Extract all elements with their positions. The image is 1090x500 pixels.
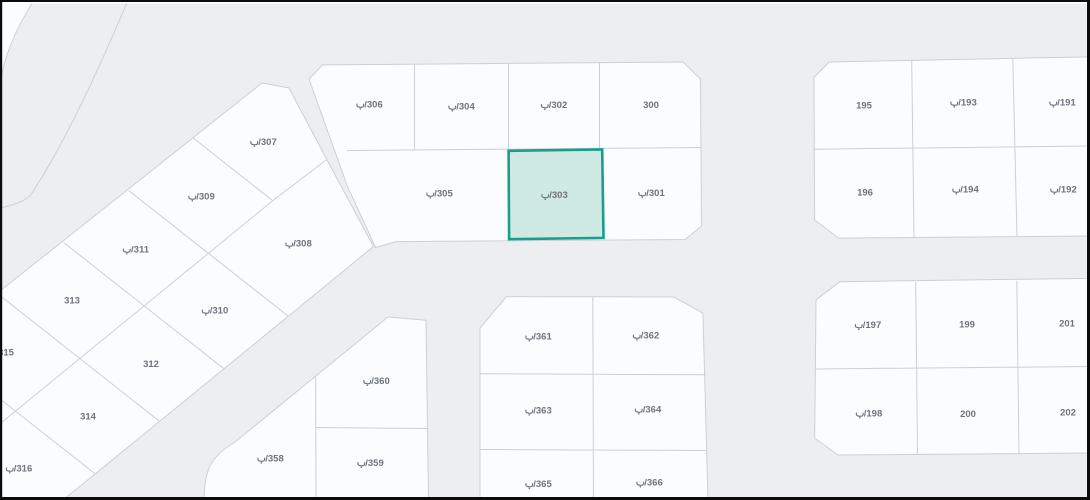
svg-text:/301: /301 [646,188,665,199]
svg-text:/198: /198 [864,408,883,419]
svg-text:/365: /365 [533,479,552,490]
svg-text:/311: /311 [131,244,150,255]
svg-text:313: 313 [64,295,80,306]
svg-text:312: 312 [143,359,159,370]
svg-text:/307: /307 [258,137,277,148]
svg-text:/303: /303 [549,190,568,201]
svg-text:199: 199 [959,319,975,330]
svg-text:/364: /364 [643,404,662,415]
svg-text:/193: /193 [958,97,977,108]
svg-text:/359: /359 [365,458,384,469]
svg-text:196: 196 [857,187,873,198]
svg-text:/192: /192 [1058,184,1077,195]
svg-text:/304: /304 [456,101,475,112]
svg-text:300: 300 [643,100,659,111]
svg-text:202: 202 [1060,407,1076,418]
svg-text:/191: /191 [1057,97,1076,108]
svg-text:/361: /361 [533,331,552,342]
svg-text:200: 200 [960,409,976,420]
svg-text:/309: /309 [196,191,215,202]
svg-text:/302: /302 [549,100,568,111]
svg-text:201: 201 [1059,318,1076,329]
svg-text:/316: /316 [14,463,33,474]
svg-text:/305: /305 [434,188,453,199]
svg-text:195: 195 [856,100,873,111]
svg-text:/363: /363 [533,405,552,416]
svg-text:/358: /358 [265,453,284,464]
svg-text:314: 314 [80,411,97,422]
svg-text:/362: /362 [641,330,660,341]
svg-text:/310: /310 [210,305,229,316]
svg-text:/308: /308 [293,238,312,249]
svg-text:/194: /194 [960,184,979,195]
svg-text:/197: /197 [863,320,882,331]
svg-text:/366: /366 [644,477,663,488]
svg-text:/306: /306 [364,99,383,110]
svg-text:/360: /360 [371,376,390,387]
